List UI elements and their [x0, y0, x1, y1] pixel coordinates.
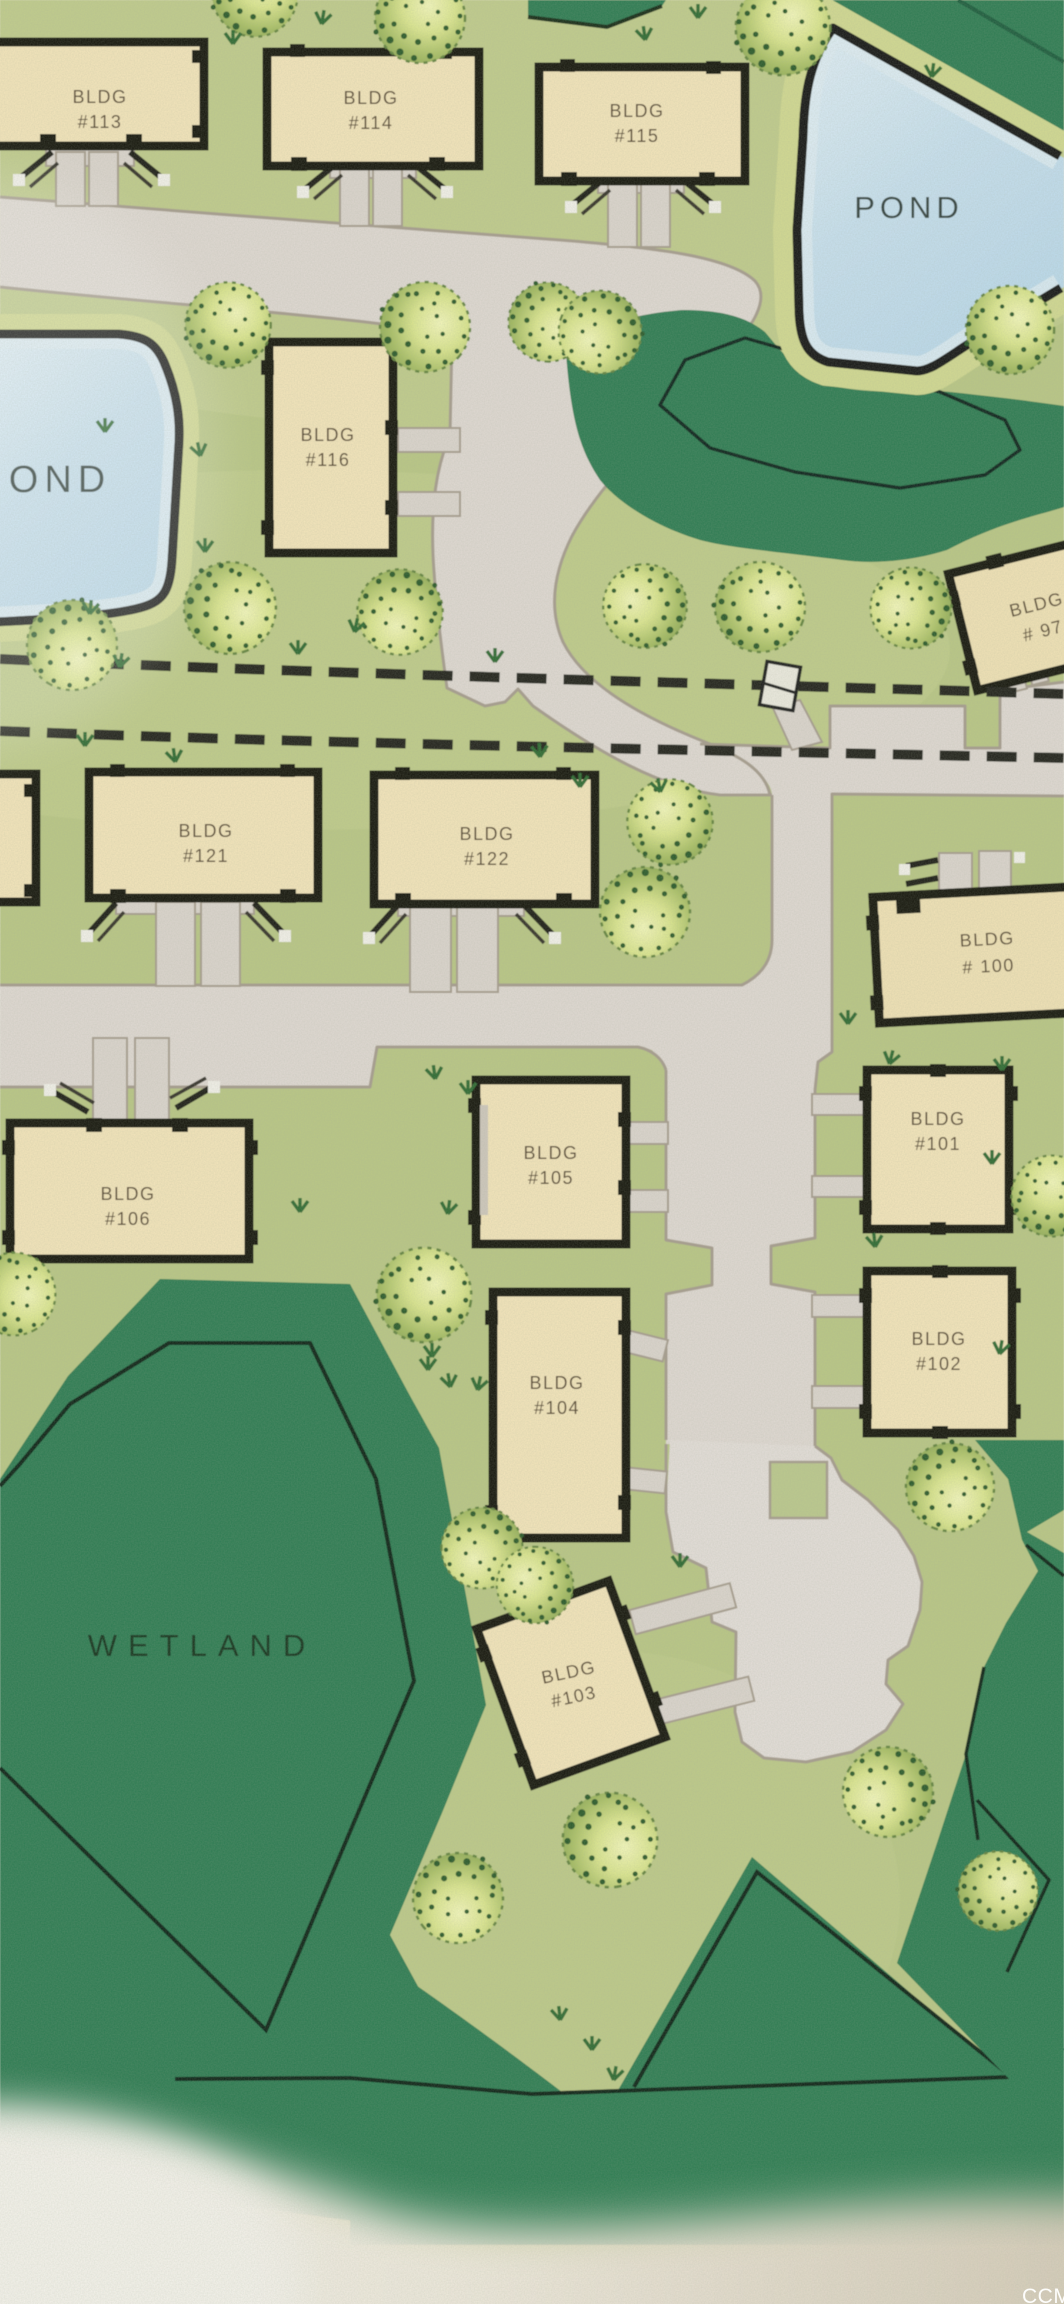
svg-text:CCMLS: CCMLS: [1022, 2285, 1064, 2304]
